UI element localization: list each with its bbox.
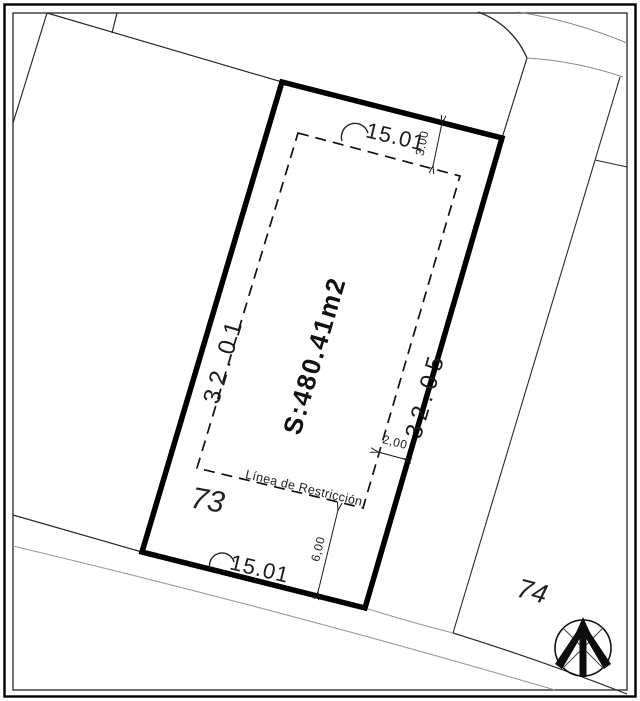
- side-setback-dim-line: [378, 452, 404, 459]
- lot-area-label: S:480.41m2: [277, 273, 352, 438]
- neighbor-parcel-lines: [13, 13, 282, 123]
- rear-setback-dimension: 6,00: [308, 535, 328, 563]
- parcel-line: [47, 13, 282, 82]
- top-setback-dim-line: [433, 123, 442, 166]
- plan-sheet: S:480.41m2 32.01 32.05 15.01 15.01 3.00 …: [0, 0, 640, 701]
- road-arc: [518, 12, 627, 43]
- corner-arc: [478, 12, 527, 58]
- lot74-boundaries: [453, 77, 627, 633]
- subject-lot-number: 73: [188, 481, 227, 519]
- parcel-tick: [595, 160, 627, 167]
- neighbor-lot-number: 74: [514, 573, 551, 610]
- north-arrow-icon: [555, 617, 611, 677]
- road-edge: [13, 515, 142, 552]
- parcel-tick: [112, 13, 117, 33]
- left-side-dimension: 32.01: [198, 313, 249, 407]
- street-curve: [478, 12, 627, 138]
- right-side-dimension: 32.05: [400, 348, 451, 442]
- parcel-line: [502, 58, 527, 138]
- lot-plan-drawing: S:480.41m2 32.01 32.05 15.01 15.01 3.00 …: [0, 0, 640, 701]
- road-arc: [527, 58, 623, 77]
- parcel-line: [13, 13, 47, 123]
- road-edge: [365, 608, 453, 633]
- restriction-line-label: Línea de Restricción: [244, 467, 364, 509]
